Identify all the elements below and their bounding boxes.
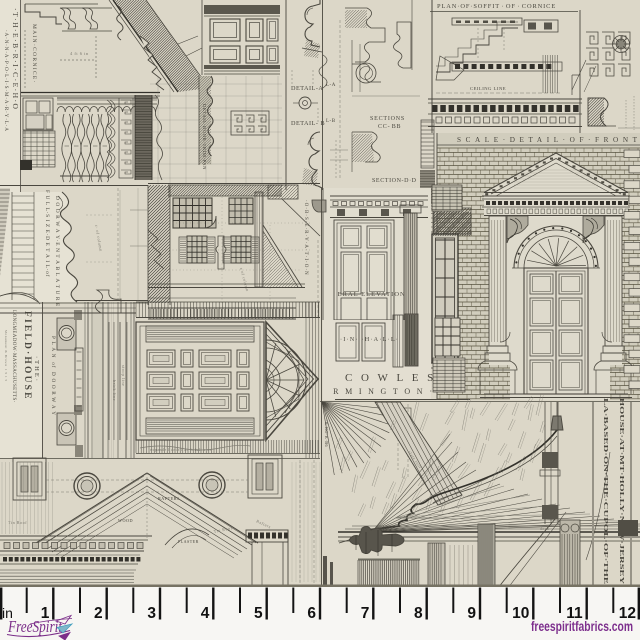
svg-text:6: 6 bbox=[307, 605, 316, 622]
svg-text:2: 2 bbox=[94, 605, 103, 622]
svg-text:freespiritfabrics.com: freespiritfabrics.com bbox=[531, 619, 633, 634]
svg-text:10: 10 bbox=[512, 605, 529, 622]
svg-text:8: 8 bbox=[414, 605, 423, 622]
svg-text:4: 4 bbox=[201, 605, 210, 622]
svg-text:9: 9 bbox=[467, 605, 476, 622]
svg-text:3: 3 bbox=[147, 605, 156, 622]
svg-text:5: 5 bbox=[254, 605, 263, 622]
svg-text:7: 7 bbox=[361, 605, 370, 622]
